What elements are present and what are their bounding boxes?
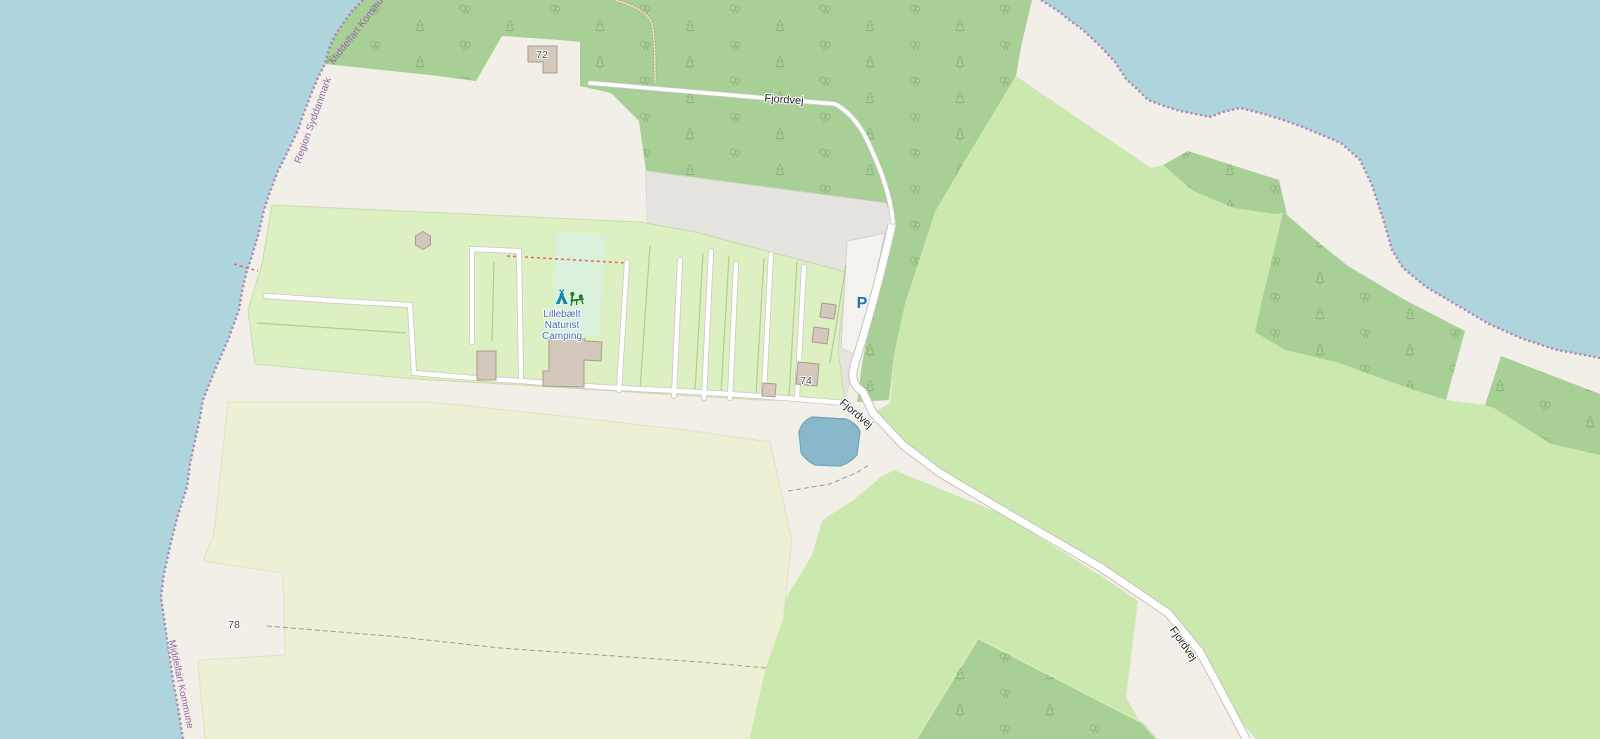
- svg-text:78: 78: [228, 619, 240, 631]
- svg-text:Camping: Camping: [542, 331, 582, 342]
- svg-text:P: P: [857, 295, 868, 312]
- svg-text:72: 72: [536, 49, 548, 61]
- svg-text:Naturist: Naturist: [545, 320, 580, 331]
- svg-text:74: 74: [800, 375, 812, 387]
- svg-text:Lillebælt: Lillebælt: [543, 309, 580, 320]
